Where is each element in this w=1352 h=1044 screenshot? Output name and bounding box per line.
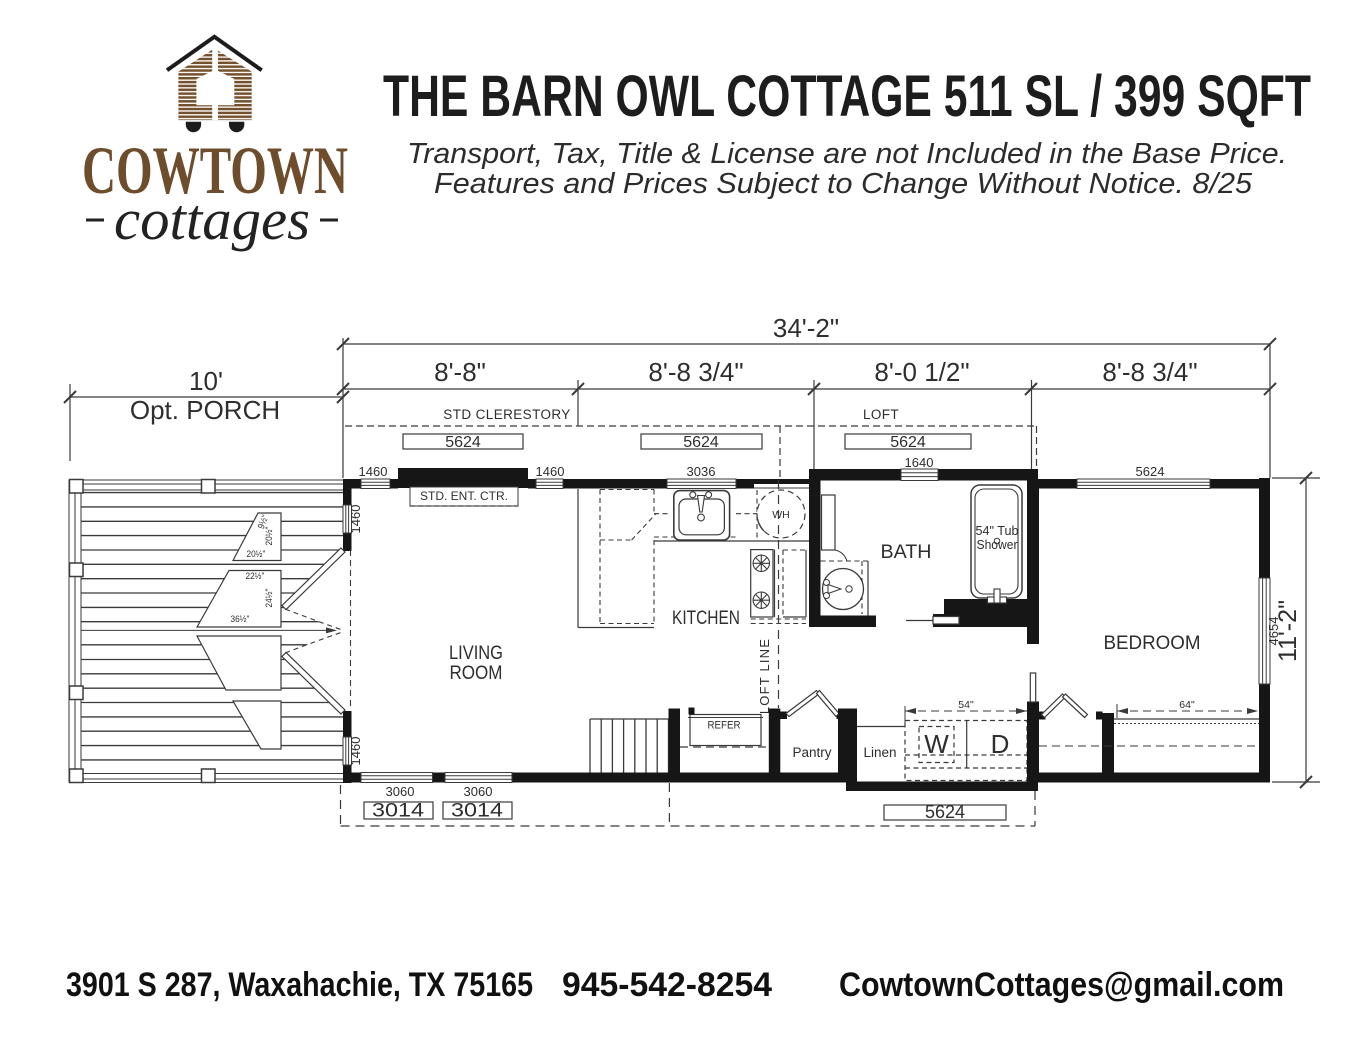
svg-text:24½": 24½" (264, 589, 275, 608)
svg-text:1460: 1460 (348, 737, 363, 766)
svg-text:REFER: REFER (708, 720, 741, 732)
svg-text:22½": 22½" (246, 571, 265, 582)
svg-text:Opt. PORCH: Opt. PORCH (130, 395, 280, 425)
svg-text:5624: 5624 (445, 434, 481, 451)
svg-text:20½": 20½" (264, 527, 275, 546)
svg-text:WH: WH (772, 509, 790, 521)
svg-text:10': 10' (189, 366, 223, 396)
svg-text:8'-8": 8'-8" (434, 357, 486, 387)
svg-text:3060: 3060 (464, 784, 493, 799)
svg-text:W: W (924, 729, 949, 759)
svg-text:LOFT: LOFT (863, 407, 899, 422)
svg-text:3014: 3014 (451, 801, 504, 822)
svg-text:STD. ENT. CTR.: STD. ENT. CTR. (420, 489, 508, 503)
svg-text:Shower: Shower (977, 538, 1018, 552)
svg-text:cottages: cottages (114, 187, 310, 252)
svg-text:5624: 5624 (1136, 464, 1165, 479)
svg-text:Transport, Tax, Title & Licens: Transport, Tax, Title & License are not … (407, 138, 1287, 170)
svg-text:BEDROOM: BEDROOM (1104, 633, 1201, 654)
svg-text:8'-8 3/4": 8'-8 3/4" (1102, 357, 1197, 387)
svg-text:THE BARN OWL COTTAGE 511 SL /: THE BARN OWL COTTAGE 511 SL / 399 SQFT (383, 64, 1311, 129)
svg-text:11'-2": 11'-2" (1274, 600, 1302, 662)
svg-text:3014: 3014 (372, 801, 425, 822)
svg-text:LOFT LINE: LOFT LINE (757, 638, 772, 714)
svg-text:5624: 5624 (683, 434, 719, 451)
svg-text:34'-2": 34'-2" (773, 313, 839, 343)
svg-text:CowtownCottages@gmail.com: CowtownCottages@gmail.com (839, 966, 1284, 1004)
svg-text:5624: 5624 (890, 434, 926, 451)
svg-text:Pantry: Pantry (792, 745, 831, 760)
svg-text:3060: 3060 (386, 784, 415, 799)
svg-text:8'-0 1/2": 8'-0 1/2" (874, 357, 969, 387)
svg-text:1640: 1640 (905, 455, 934, 470)
svg-text:64": 64" (1179, 699, 1195, 711)
svg-text:BATH: BATH (881, 542, 932, 563)
svg-text:1460: 1460 (348, 505, 363, 534)
svg-text:945-542-8254: 945-542-8254 (562, 966, 772, 1004)
svg-text:8'-8 3/4": 8'-8 3/4" (648, 357, 743, 387)
svg-text:LIVING: LIVING (449, 643, 503, 664)
svg-text:KITCHEN: KITCHEN (672, 608, 740, 629)
svg-text:3901 S 287, Waxahachie, TX 751: 3901 S 287, Waxahachie, TX 75165 (66, 966, 533, 1004)
svg-text:54" Tub: 54" Tub (976, 524, 1019, 538)
svg-text:1460: 1460 (536, 464, 565, 479)
svg-text:36½": 36½" (231, 614, 250, 625)
svg-text:54": 54" (958, 699, 974, 711)
svg-text:3036: 3036 (687, 464, 716, 479)
svg-text:20½": 20½" (247, 549, 266, 560)
svg-text:1460: 1460 (359, 464, 388, 479)
svg-text:5624: 5624 (925, 802, 965, 822)
svg-text:Linen: Linen (863, 745, 896, 760)
svg-text:D: D (991, 729, 1010, 759)
svg-text:Features and Prices Subject to: Features and Prices Subject to Change Wi… (434, 168, 1253, 200)
svg-text:ROOM: ROOM (450, 663, 503, 684)
svg-text:STD CLERESTORY: STD CLERESTORY (443, 407, 570, 422)
